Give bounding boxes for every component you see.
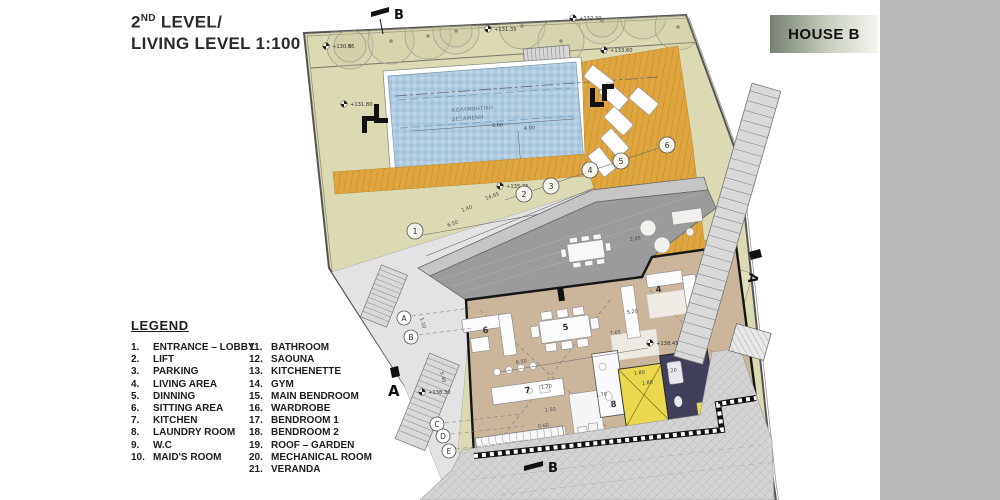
legend-item: 20.MECHANICAL ROOM (249, 452, 372, 464)
legend-item: 8.LAUNDRY ROOM (131, 427, 249, 439)
legend-item: 2.LIFT (131, 354, 249, 366)
area-number-6: 6 (664, 141, 669, 150)
legend-item: 11.BATHROOM (249, 342, 372, 354)
grid-letter-d: D (440, 432, 446, 441)
section-marker-b-top: B (394, 8, 404, 23)
area-number-5: 5 (618, 157, 623, 166)
house-label: HOUSE B (770, 15, 878, 53)
legend-item: 13.KITCHENETTE (249, 366, 372, 378)
elevation-138-30: +138.30 (428, 390, 451, 396)
section-marker-a-left: A (388, 382, 400, 400)
area-number-1: 1 (412, 227, 417, 236)
legend-item: 1.ENTRANCE – LOBBY (131, 342, 249, 354)
title-line-1: 2ND LEVEL/ (131, 8, 300, 33)
legend-item: 3.PARKING (131, 366, 249, 378)
grid-letter-e: E (447, 447, 452, 456)
legend-item: 4.LIVING AREA (131, 379, 249, 391)
dim-pool-width: 4.00 (524, 125, 536, 132)
legend-item: 14.GYM (249, 379, 372, 391)
legend-item: 21.VERANDA (249, 464, 372, 476)
grid-letter-a: A (401, 314, 407, 323)
title-line-2: LIVING LEVEL 1:100 (131, 33, 300, 54)
area-number-2: 2 (521, 190, 526, 199)
legend-item: 17.BENDROOM 1 (249, 415, 372, 427)
elevation-132-30: +132.30 (579, 16, 602, 22)
legend-item: 7.KITCHEN (131, 415, 249, 427)
elevation-133-60: +133.60 (610, 48, 633, 54)
elevation-131-80: +131.80 (350, 102, 373, 108)
legend-item: 9.W.C (131, 440, 249, 452)
section-marker-b-bottom: B (548, 461, 558, 476)
legend-item: 6.SITTING AREA (131, 403, 249, 415)
legend-item: 18.BENDROOM 2 (249, 427, 372, 439)
legend-column-1: 1.ENTRANCE – LOBBY 2.LIFT 3.PARKING 4.LI… (131, 342, 249, 476)
elevation-138-45: +138.45 (656, 341, 679, 347)
dim-pool-length: 9.60 (492, 122, 504, 129)
legend-item: 5.DINNING (131, 391, 249, 403)
page-title: 2ND LEVEL/ LIVING LEVEL 1:100 (131, 8, 300, 54)
legend: LEGEND 1.ENTRANCE – LOBBY 2.LIFT 3.PARKI… (131, 318, 372, 476)
elevation-130-55: +130.55 (332, 44, 355, 50)
area-number-3: 3 (548, 182, 553, 191)
legend-item: 19.ROOF – GARDEN (249, 440, 372, 452)
legend-item: 15.MAIN BENDROOM (249, 391, 372, 403)
legend-item: 12.SAOUNA (249, 354, 372, 366)
legend-column-2: 11.BATHROOM 12.SAOUNA 13.KITCHENETTE 14.… (249, 342, 372, 476)
drawing-sheet: ΚΟΛΥΜΒΗΤΙΚΗ ΔΕΞΑΜΕΝΗ 9.60 4.00 1.00 2.70… (0, 0, 1000, 500)
grid-letter-b: B (408, 333, 413, 342)
legend-item: 10.MAID'S ROOM (131, 452, 249, 464)
area-number-4: 4 (587, 166, 592, 175)
grid-letter-c: C (434, 420, 439, 429)
legend-heading: LEGEND (131, 318, 372, 333)
legend-item: 16.WARDROBE (249, 403, 372, 415)
elevation-131-35: +131.35 (494, 27, 517, 33)
